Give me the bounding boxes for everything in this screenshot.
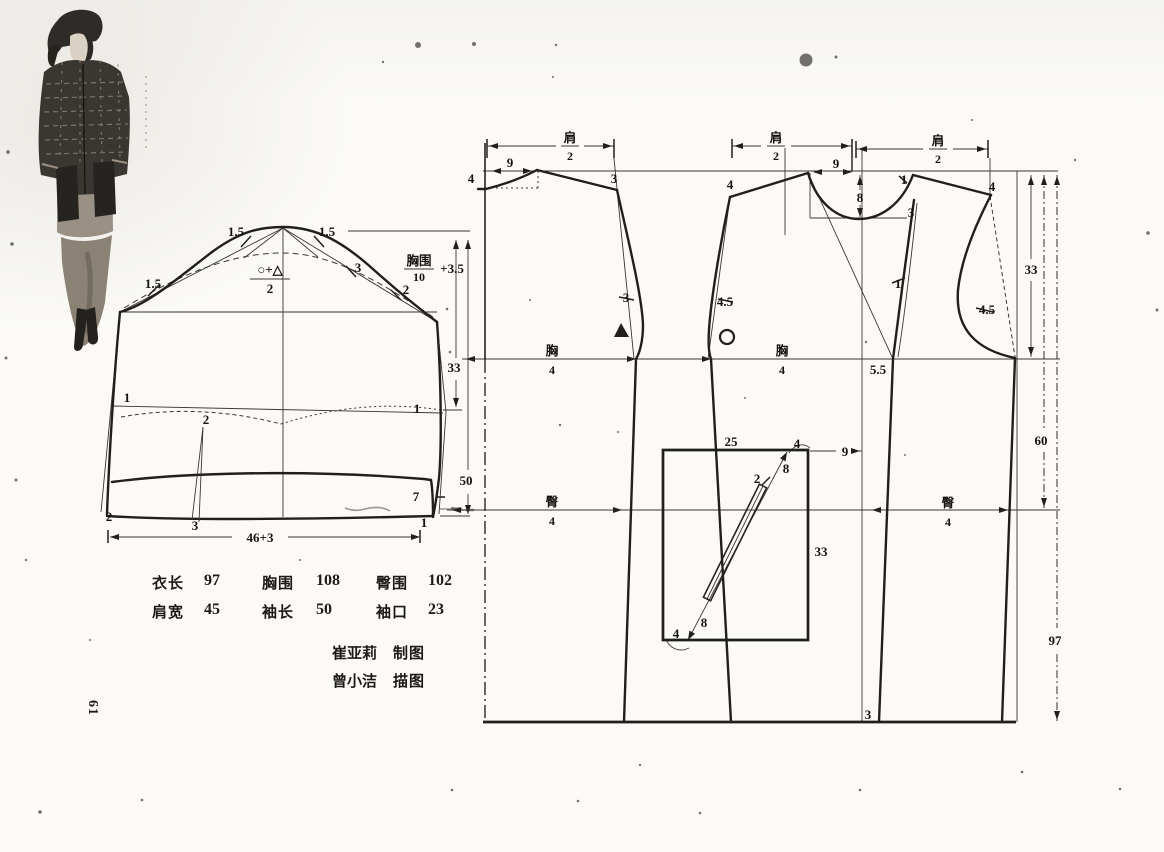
label-shoulder-fraction-num-side: 肩 (932, 133, 945, 148)
label-hem-offset: 3 (865, 707, 872, 722)
size-value: 23 (428, 601, 486, 622)
label-side-neck-point: 1 (901, 172, 908, 187)
label-hip-fraction-num-back: 臀 (546, 495, 559, 509)
side-piece-outline (879, 175, 1015, 722)
size-label: 衣长 (152, 572, 204, 593)
size-label: 袖长 (262, 601, 316, 622)
label-ease-lower-right: 2 (403, 282, 410, 297)
label-front-edge-offset: 1 (895, 276, 902, 291)
label-pocket-upper-length: 8 (783, 461, 790, 476)
label-garment-length: 97 (1049, 633, 1063, 648)
label-front-shoulder-point: 4 (727, 177, 734, 192)
bodice-draft-diagram: 肩 2 肩 2 肩 2 胸 4 胸 4 臀 4 臀 4 9 4 3 3 4 4.… (447, 130, 1062, 722)
label-ease-right: 3 (355, 260, 362, 275)
label-front-neck-depth: 8 (857, 190, 864, 205)
label-shoulder-fraction-den-side: 2 (935, 152, 941, 166)
label-front-neck-width: 9 (833, 156, 840, 171)
scan-noise-dots (5, 42, 1159, 814)
tracer-role: 描图 (393, 674, 425, 690)
label-chest-dart-offset: 5.5 (870, 362, 887, 377)
label-armhole-depth: 33 (1025, 262, 1039, 277)
scanned-pattern-book-page: 1.5 1.5 1.5 3 2 ○+△ 2 胸围 10 +3.5 33 50 1… (0, 0, 1164, 852)
label-ease-upper-right: 1.5 (319, 224, 336, 239)
size-value: 102 (428, 572, 486, 593)
label-pocket-top-end: 4 (794, 436, 801, 451)
sleeve-draft-diagram: 1.5 1.5 1.5 3 2 ○+△ 2 胸围 10 +3.5 33 50 1… (101, 224, 473, 545)
credit-line: 崔亚莉制图 (332, 640, 425, 668)
label-shoulder-fraction-den-front: 2 (773, 149, 779, 163)
sleeve-labels: 1.5 1.5 1.5 3 2 ○+△ 2 胸围 10 +3.5 33 50 1… (106, 224, 473, 545)
label-sleeve-length: 50 (460, 473, 473, 488)
size-table: 衣长 97 胸围 108 臀围 102 肩宽 45 袖长 50 袖口 23 (152, 572, 486, 622)
label-front-armhole-ease: 4.5 (717, 294, 734, 309)
back-side-seam (624, 359, 636, 722)
credits-block: 崔亚莉制图 曾小洁描图 (332, 640, 425, 696)
size-value: 108 (316, 572, 376, 593)
label-cuff-right-offset: 7 (413, 489, 420, 504)
label-back-neck-width: 9 (507, 155, 514, 170)
tracer-name: 曾小洁 (332, 674, 377, 690)
label-hip-fraction-num-side: 臀 (942, 496, 955, 510)
fashion-figure-illustration (39, 10, 146, 351)
bodice-construction-lines (447, 139, 1060, 722)
label-pocket-bottom-end: 4 (673, 626, 680, 641)
hat-brim (48, 44, 60, 66)
label-welt-width: 2 (754, 471, 761, 486)
side-seam (1002, 358, 1015, 722)
label-hip-length: 60 (1035, 433, 1048, 448)
label-width-formula-num: 胸围 (406, 253, 431, 268)
label-shoulder-fraction-num-back: 肩 (564, 130, 577, 145)
pocket-box (663, 450, 808, 640)
label-shoulder-fraction-num-front: 肩 (770, 130, 783, 145)
label-back-neck-depth: 4 (468, 171, 475, 186)
label-width-formula-plus: +3.5 (440, 261, 464, 276)
size-value: 97 (204, 572, 262, 593)
bodice-labels: 肩 2 肩 2 肩 2 胸 4 胸 4 臀 4 臀 4 9 4 3 3 4 4.… (468, 130, 1062, 722)
credit-line: 曾小洁描图 (332, 668, 425, 696)
side-front-edge (879, 359, 893, 722)
jacket-pocket-right (93, 161, 116, 217)
label-elbow-right: 1 (414, 401, 421, 416)
label-elbow-height: 33 (448, 360, 462, 375)
label-cap-formula-num: ○+△ (257, 262, 283, 277)
label-shoulder-fraction-den-back: 2 (567, 149, 573, 163)
sleeve-underseam-left (107, 312, 120, 514)
drafter-name: 崔亚莉 (332, 646, 377, 662)
label-ease-left: 1.5 (145, 276, 162, 291)
front-side-seam (711, 359, 731, 722)
sleeve-hem (107, 516, 433, 519)
label-back-shoulder-point: 3 (611, 171, 618, 186)
back-neck-curve (478, 170, 537, 189)
page-number: 61 (84, 700, 100, 716)
side-shoulder (913, 175, 991, 195)
label-chest-fraction-num-front: 胸 (776, 343, 789, 358)
size-value: 50 (316, 601, 376, 622)
side-armhole (958, 195, 1015, 358)
pocket-detail-inset (663, 450, 808, 640)
label-cap-formula-den: 2 (267, 281, 274, 296)
label-elbow-dart-bottom: 3 (192, 518, 199, 533)
label-pocket-height: 33 (815, 544, 829, 559)
label-side-neck-curve: 3 (908, 205, 915, 220)
label-width-formula-den: 10 (413, 270, 425, 284)
label-ease-upper-left: 1.5 (228, 224, 245, 239)
sleeve-cuff-top-curve (112, 473, 433, 516)
label-pocket-lower-length: 8 (701, 615, 708, 630)
front-shoulder (730, 173, 808, 197)
size-label: 肩宽 (152, 601, 204, 622)
size-label: 袖口 (376, 601, 428, 622)
label-hip-fraction-den-back: 4 (549, 514, 555, 528)
label-pocket-offset: 9 (842, 444, 849, 459)
page-artwork: 1.5 1.5 1.5 3 2 ○+△ 2 胸围 10 +3.5 33 50 1… (0, 0, 1164, 852)
scan-smudge-line (345, 507, 468, 511)
label-cuff-width: 46+3 (247, 530, 274, 545)
label-pocket-width: 25 (725, 434, 739, 449)
label-side-armhole-ease: 4.5 (979, 302, 996, 317)
size-value: 45 (204, 601, 262, 622)
sleeve-underseam-right (433, 322, 441, 517)
label-cuff-right: 1 (421, 515, 428, 530)
label-chest-fraction-num-back: 胸 (546, 343, 559, 358)
size-label: 胸围 (262, 572, 316, 593)
back-shoulder (537, 170, 617, 190)
circle-mark-icon (720, 330, 734, 344)
bodice-dimension-arrowheads (452, 143, 1060, 720)
label-elbow-dart-top: 2 (203, 412, 210, 427)
label-chest-fraction-den-back: 4 (549, 363, 555, 377)
label-chest-fraction-den-front: 4 (779, 363, 785, 377)
size-label: 臀围 (376, 572, 428, 593)
triangle-mark-icon (614, 323, 629, 337)
label-side-shoulder-point: 4 (989, 179, 996, 194)
label-cuff-left: 2 (106, 509, 113, 524)
drafter-role: 制图 (393, 646, 425, 662)
label-hip-fraction-den-side: 4 (945, 515, 951, 529)
label-back-armhole-ease: 3 (623, 290, 630, 305)
label-elbow-left: 1 (124, 390, 131, 405)
jacket-pocket-left (56, 165, 79, 222)
